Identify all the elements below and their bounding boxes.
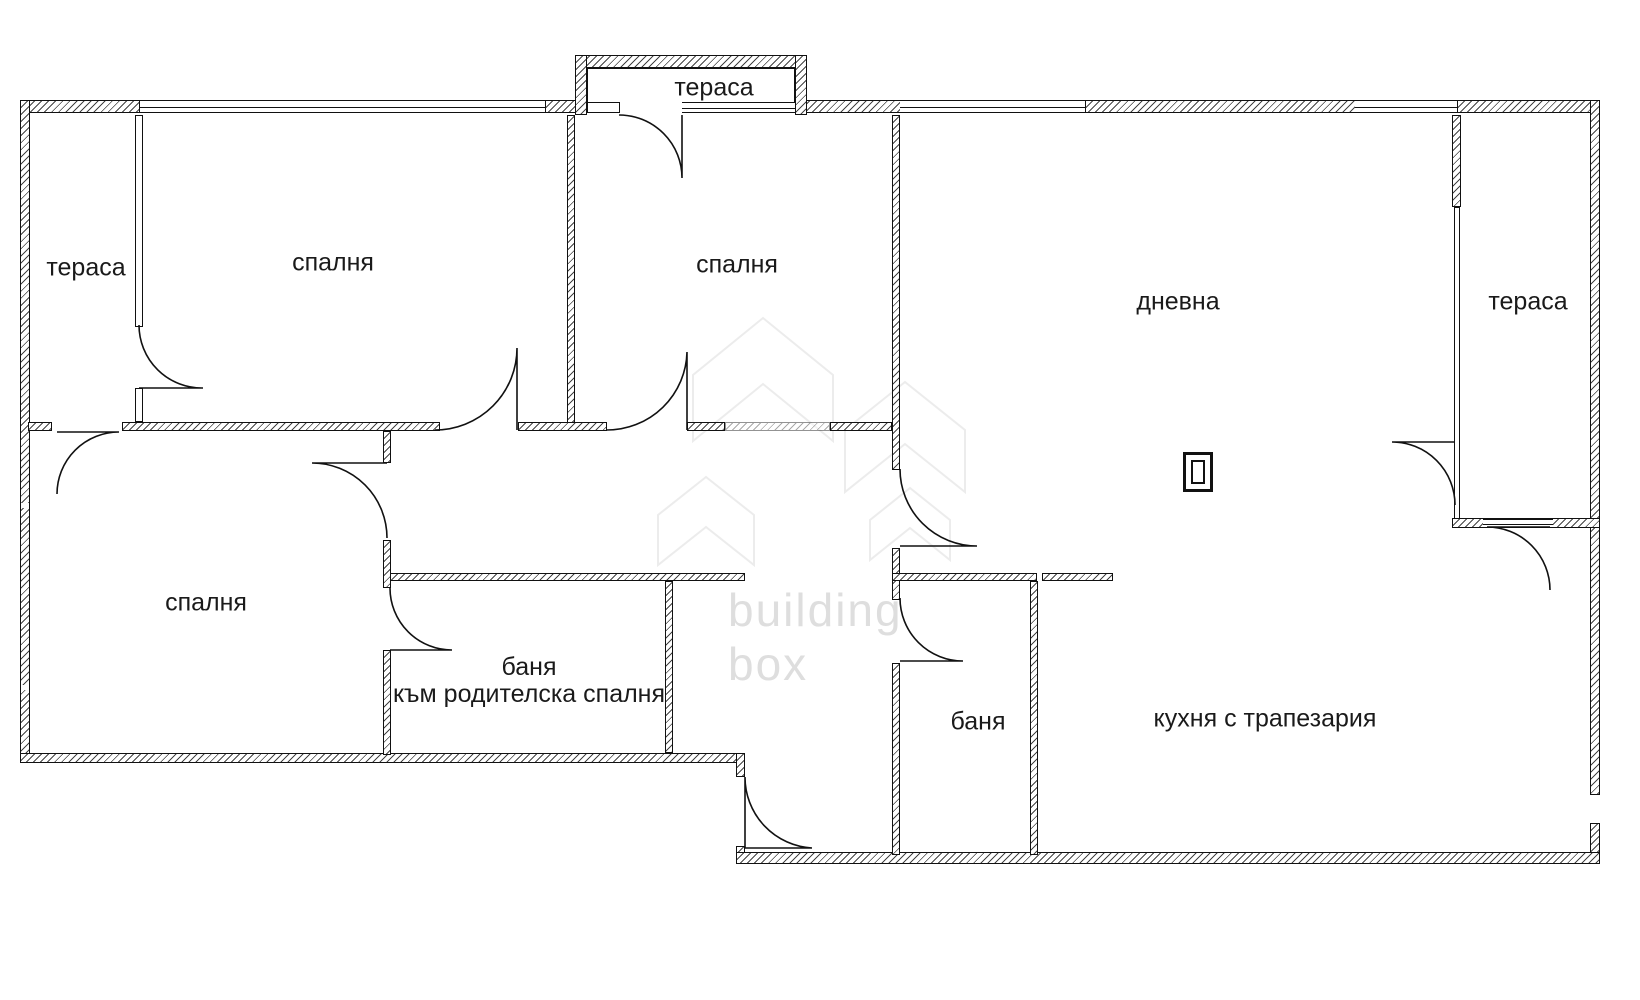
door-arc [57, 432, 119, 494]
room-label-terrace-top: тераса [674, 75, 753, 102]
door-arc [1392, 442, 1455, 505]
floor-plan: building box [0, 0, 1640, 1000]
room-label-kitchen: кухня с трапезария [1154, 706, 1377, 733]
room-label-bedroom-2: спалня [696, 252, 778, 279]
room-label-bath-parent: баня към родителска спалня [393, 654, 665, 708]
room-label-bath-small: баня [951, 709, 1006, 736]
door-arc [900, 469, 977, 546]
door-arc [139, 325, 203, 388]
door-arc [435, 348, 517, 430]
room-label-terrace-left: тераса [46, 255, 125, 282]
room-label-terrace-right: тераса [1488, 289, 1567, 316]
doors-layer [0, 0, 1640, 1000]
door-arc [312, 463, 387, 538]
door-arc [900, 598, 963, 661]
door-arc [390, 588, 452, 650]
door-arc [607, 352, 687, 430]
room-label-bath-parent-line2: към родителска спалня [393, 680, 665, 708]
room-label-living-room: дневна [1136, 289, 1219, 316]
room-label-bath-parent-line1: баня [501, 653, 556, 681]
door-arc [1487, 527, 1550, 590]
door-arc [619, 115, 682, 178]
door-arc [745, 777, 812, 848]
room-label-bedroom-3: спалня [165, 590, 247, 617]
room-label-bedroom-1: спалня [292, 250, 374, 277]
